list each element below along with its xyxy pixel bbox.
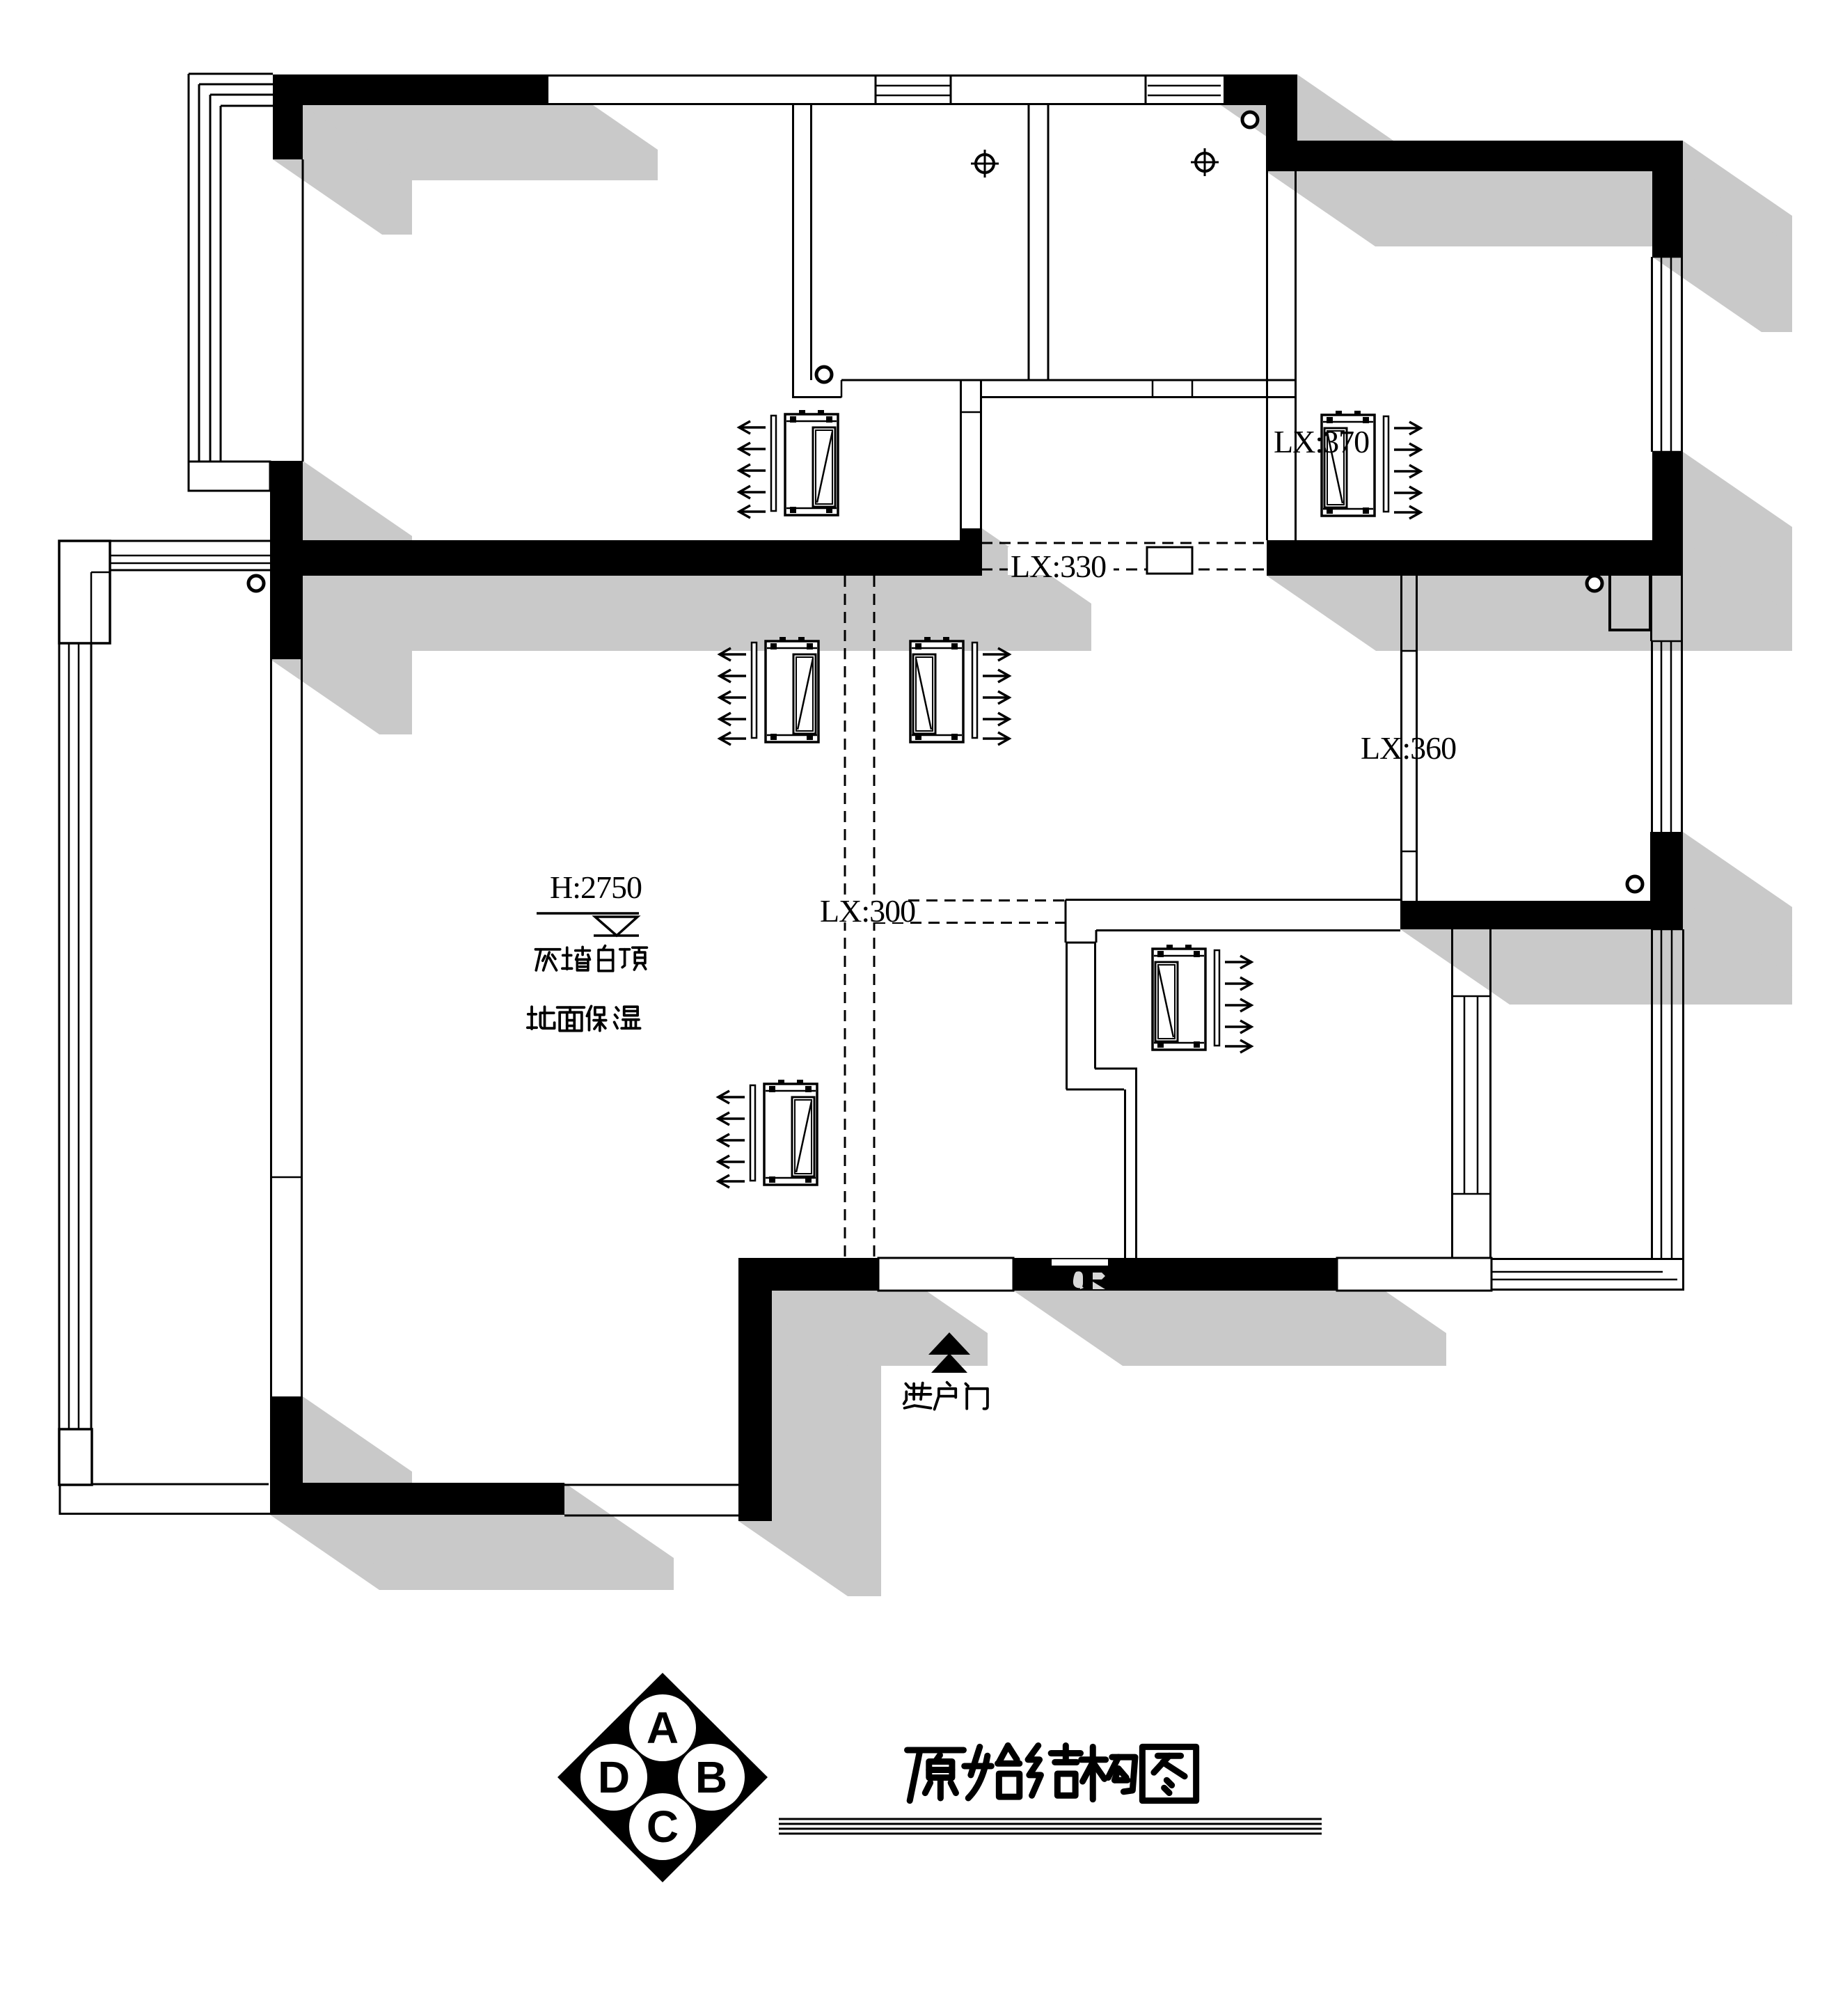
svg-text:D: D xyxy=(598,1752,630,1802)
svg-text:H:2750: H:2750 xyxy=(550,869,642,905)
svg-text:LX:330: LX:330 xyxy=(1011,549,1106,584)
svg-text:LX:300: LX:300 xyxy=(820,893,915,929)
svg-text:C: C xyxy=(647,1802,679,1852)
svg-text:B: B xyxy=(695,1752,727,1802)
svg-text:LX:360: LX:360 xyxy=(1361,730,1456,766)
svg-text:A: A xyxy=(647,1703,679,1753)
svg-text:LX:370: LX:370 xyxy=(1274,424,1369,459)
